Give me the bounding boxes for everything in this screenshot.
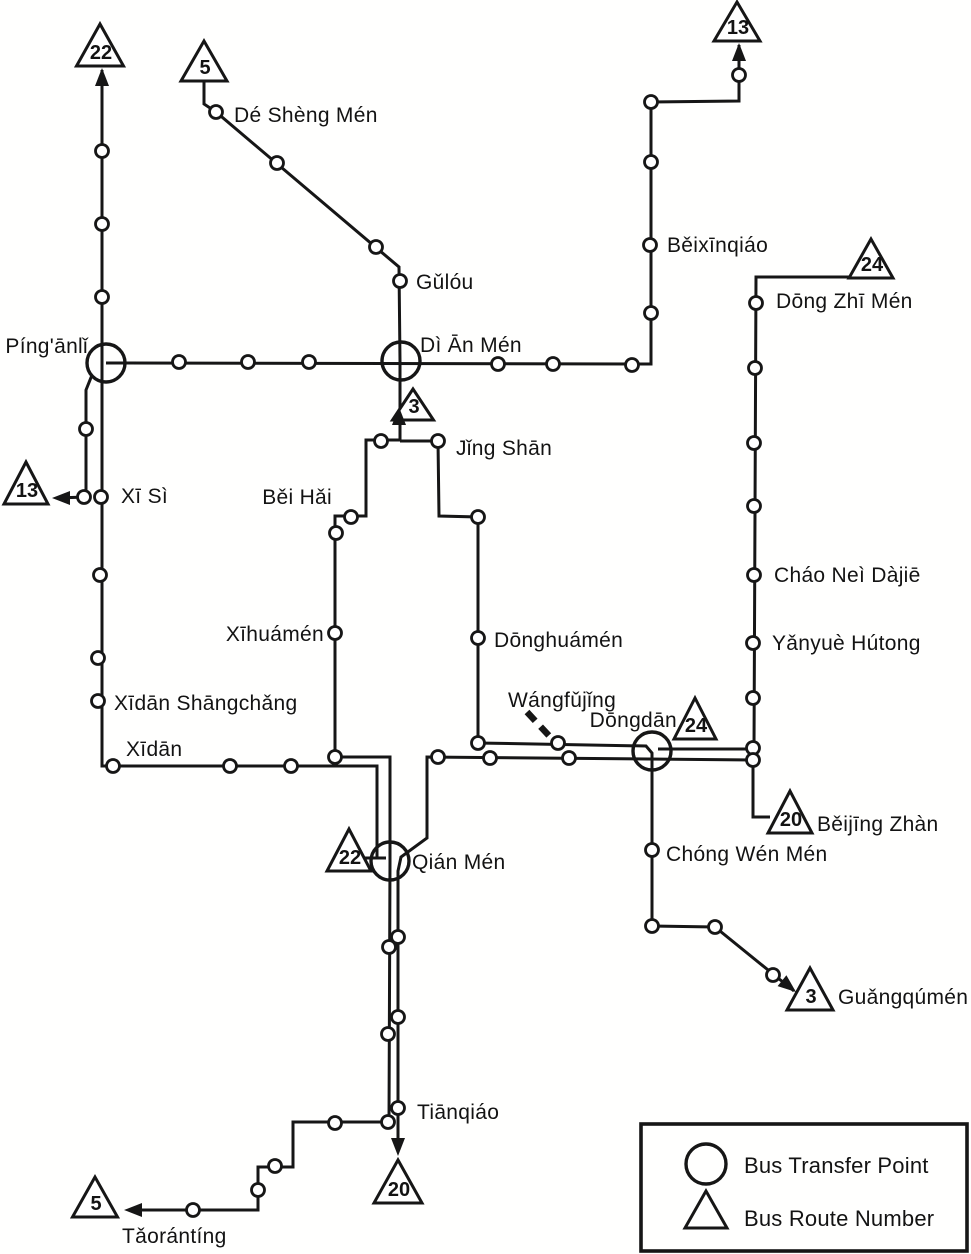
bus-stop-marker (646, 920, 659, 933)
station-label: Gǔlóu (416, 271, 474, 294)
bus-stop-marker (748, 569, 761, 582)
bus-stop-marker (329, 1117, 342, 1130)
station-label: Dì Ān Mén (420, 334, 522, 357)
bus-stop-marker (747, 754, 760, 767)
route-13-north-end-route-number: 13 (727, 17, 749, 39)
bus-stop-marker (80, 423, 93, 436)
station-label: Tǎorántíng (122, 1225, 227, 1248)
station-label: Běixīnqiáo (667, 234, 768, 257)
route-22-qianmen-end-route-number: 22 (339, 847, 361, 869)
bus-stop-marker (94, 569, 107, 582)
station-label: Guǎngqúmén (838, 986, 968, 1009)
bus-stop-marker (173, 356, 186, 369)
direction-arrow-icon (732, 43, 746, 61)
bus-stop-marker (329, 627, 342, 640)
legend-transfer-label: Bus Transfer Point (744, 1153, 929, 1178)
bus-stop-marker (96, 291, 109, 304)
route-5-north-line (204, 82, 400, 441)
station-label: Xīdān Shāngchǎng (114, 692, 297, 715)
station-label: Xīhuámén (226, 623, 324, 646)
route-20-line (398, 757, 770, 1150)
route-3-guangqumen-end-route-number: 3 (805, 986, 816, 1008)
station-label: Běijīng Zhàn (817, 813, 939, 836)
bus-stop-marker (242, 356, 255, 369)
bus-stop-marker (375, 435, 388, 448)
bus-stop-marker (107, 760, 120, 773)
bus-stop-marker (552, 737, 565, 750)
station-label: Dōng Zhī Mén (776, 290, 913, 313)
station-label: Cháo Neì Dàjiē (774, 564, 921, 587)
bus-stop-marker (329, 751, 342, 764)
station-label: Dōngdān (590, 709, 677, 732)
station-label: Xīdān (126, 738, 182, 761)
bus-stop-marker (92, 695, 105, 708)
bus-route-map-page: 22513241332420223205Dé Shèng MénGǔlóuDì … (0, 0, 971, 1254)
bus-stop-marker (432, 435, 445, 448)
bus-stop-marker (472, 737, 485, 750)
route-5-taoranting-end-route-number: 5 (90, 1193, 101, 1215)
bus-stop-marker (224, 760, 237, 773)
bus-stop-marker (370, 241, 383, 254)
route-5-south-line (128, 440, 400, 1210)
bus-stop-marker (767, 969, 780, 982)
bus-stop-marker (432, 751, 445, 764)
bus-stop-marker (484, 752, 497, 765)
station-label: Jǐng Shān (456, 437, 552, 460)
route-13-west-end-route-number: 13 (16, 480, 38, 502)
bus-stop-marker (252, 1184, 265, 1197)
bus-stop-marker (96, 218, 109, 231)
route-20-beijingzhan-end-route-number: 20 (780, 809, 802, 831)
legend-box (641, 1124, 967, 1251)
bus-stop-marker (749, 362, 762, 375)
direction-arrow-icon (95, 68, 109, 86)
route-3-dianmen-end-route-number: 3 (408, 396, 419, 418)
bus-stop-marker (644, 239, 657, 252)
direction-arrow-icon (391, 1138, 405, 1156)
bus-stop-marker (382, 1028, 395, 1041)
bus-stop-marker (330, 527, 343, 540)
bus-stop-marker (345, 511, 358, 524)
direction-arrow-icon (52, 491, 70, 505)
station-label: Xī Sì (121, 485, 168, 508)
station-label: Chóng Wén Mén (666, 843, 827, 866)
route-22-north-end-route-number: 22 (90, 42, 112, 64)
bus-stop-marker (392, 1102, 405, 1115)
bus-stop-marker (748, 437, 761, 450)
legend-route-label: Bus Route Number (744, 1206, 934, 1231)
bus-stop-marker (492, 358, 505, 371)
bus-stop-marker (645, 307, 658, 320)
bus-stop-marker (271, 157, 284, 170)
station-label: Píng'ānlǐ (5, 335, 89, 358)
legend-transfer-point-icon (686, 1144, 726, 1184)
bus-stop-marker (563, 752, 576, 765)
station-label: Qián Mén (412, 851, 505, 874)
route-24-north-end-route-number: 24 (861, 254, 884, 276)
route-5-north-end-route-number: 5 (199, 57, 210, 79)
bus-stop-marker (269, 1160, 282, 1173)
bus-stop-marker (394, 275, 407, 288)
station-label: Běi Hǎi (262, 486, 332, 509)
bus-stop-marker (78, 491, 91, 504)
route-20-tianqiao-end-route-number: 20 (388, 1179, 410, 1201)
bus-stop-marker (285, 760, 298, 773)
station-label: Yǎnyuè Hútong (772, 632, 921, 655)
map-canvas: 22513241332420223205Dé Shèng MénGǔlóuDì … (0, 0, 971, 1254)
bus-stop-marker (646, 844, 659, 857)
bus-stop-marker (547, 358, 560, 371)
bus-stop-marker (645, 96, 658, 109)
bus-stop-marker (748, 500, 761, 513)
station-label: Dōnghuámén (494, 629, 623, 652)
bus-stop-marker (472, 511, 485, 524)
station-label: Tiānqiáo (417, 1101, 499, 1124)
bus-stop-marker (750, 297, 763, 310)
bus-stop-marker (96, 145, 109, 158)
bus-stop-marker (303, 356, 316, 369)
legend-route-number-icon (685, 1191, 727, 1228)
wangfujing-pointer-dashed-line (527, 712, 553, 740)
bus-stop-marker (472, 632, 485, 645)
bus-stop-marker (747, 637, 760, 650)
bus-stop-marker (392, 1011, 405, 1024)
bus-stop-marker (383, 941, 396, 954)
station-label: Dé Shèng Mén (234, 104, 378, 127)
bus-stop-marker (187, 1204, 200, 1217)
bus-stop-marker (382, 1116, 395, 1129)
bus-stop-marker (733, 69, 746, 82)
bus-stop-marker (92, 652, 105, 665)
bus-stop-marker (210, 106, 223, 119)
route-24-dongdan-end-route-number: 24 (685, 715, 708, 737)
bus-stop-marker (95, 491, 108, 504)
bus-stop-marker (747, 692, 760, 705)
direction-arrow-icon (124, 1203, 142, 1217)
bus-stop-marker (709, 921, 722, 934)
bus-stop-marker (626, 359, 639, 372)
bus-stop-marker (645, 156, 658, 169)
